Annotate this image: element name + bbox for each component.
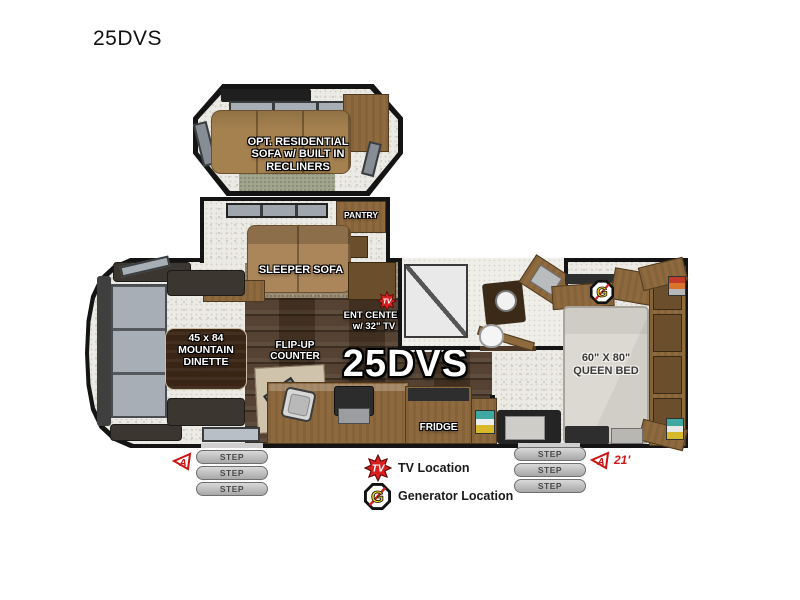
floorplan-canvas: 25DVS OPT. RESIDENTIAL SOFA w/ BUILT IN … [0,0,800,600]
generator-location-marker: G [590,280,614,304]
opt-slideout-label: OPT. RESIDENTIAL SOFA w/ BUILT IN RECLIN… [193,136,403,173]
legend-generator-icon: G [364,483,391,510]
legend-tv-label: TV Location [398,461,470,475]
fridge-label: FRIDGE [405,422,472,433]
entry-door-threshold-front [201,443,263,448]
step: STEP [196,482,268,496]
linen-towels [475,410,495,434]
kitchen-sink-basin [287,393,311,417]
bed-platform-rug [505,416,545,440]
svg-text:A: A [178,458,186,469]
dinette-label: 45 x 84 MOUNTAIN DINETTE [161,333,251,368]
wardrobe-door-3 [653,356,682,394]
page-title: 25DVS [93,27,162,51]
svg-text:G: G [371,488,384,506]
awning-length-label: 21' [614,453,630,467]
step: STEP [514,463,586,477]
fridge-top-panel [408,388,469,401]
bedroom-dresser [565,426,609,444]
front-pillar [97,276,111,426]
awning-marker-front: A [172,452,192,472]
optional-slideout-module: OPT. RESIDENTIAL SOFA w/ BUILT IN RECLIN… [193,84,403,196]
pantry-label: PANTRY [334,211,388,221]
slideout-window [226,203,328,218]
steps-front: STEP STEP STEP [196,450,268,498]
legend-tv-icon: TV [364,454,392,482]
sleeper-sofa-label: SLEEPER SOFA [238,264,364,276]
front-cap-window [111,284,167,418]
shelf-items-top [668,276,686,296]
dinette-bench-bottom [167,398,245,426]
shower [404,264,468,338]
dinette-bench-top [167,270,245,296]
tv-location-marker: TV [377,291,397,311]
step: STEP [196,466,268,480]
svg-text:TV: TV [372,464,386,475]
legend-generator-label: Generator Location [398,489,513,503]
steps-rear: STEP STEP STEP [514,447,586,495]
svg-text:A: A [596,457,604,468]
awning-marker-rear: A [590,451,610,471]
step: STEP [196,450,268,464]
bath-sink [495,290,517,312]
shelf-items-bottom [666,418,684,440]
entry-door-window [202,427,260,442]
step: STEP [514,447,586,461]
front-bench-bottom [110,424,182,441]
svg-text:TV: TV [382,298,392,306]
svg-text:G: G [596,285,607,301]
wardrobe-door-2 [653,314,682,352]
bedroom-dresser-top [611,428,643,444]
queen-bed-label: 60" X 80" QUEEN BED [552,352,660,377]
step: STEP [514,479,586,493]
stove-front [338,408,370,424]
toilet [479,324,504,348]
